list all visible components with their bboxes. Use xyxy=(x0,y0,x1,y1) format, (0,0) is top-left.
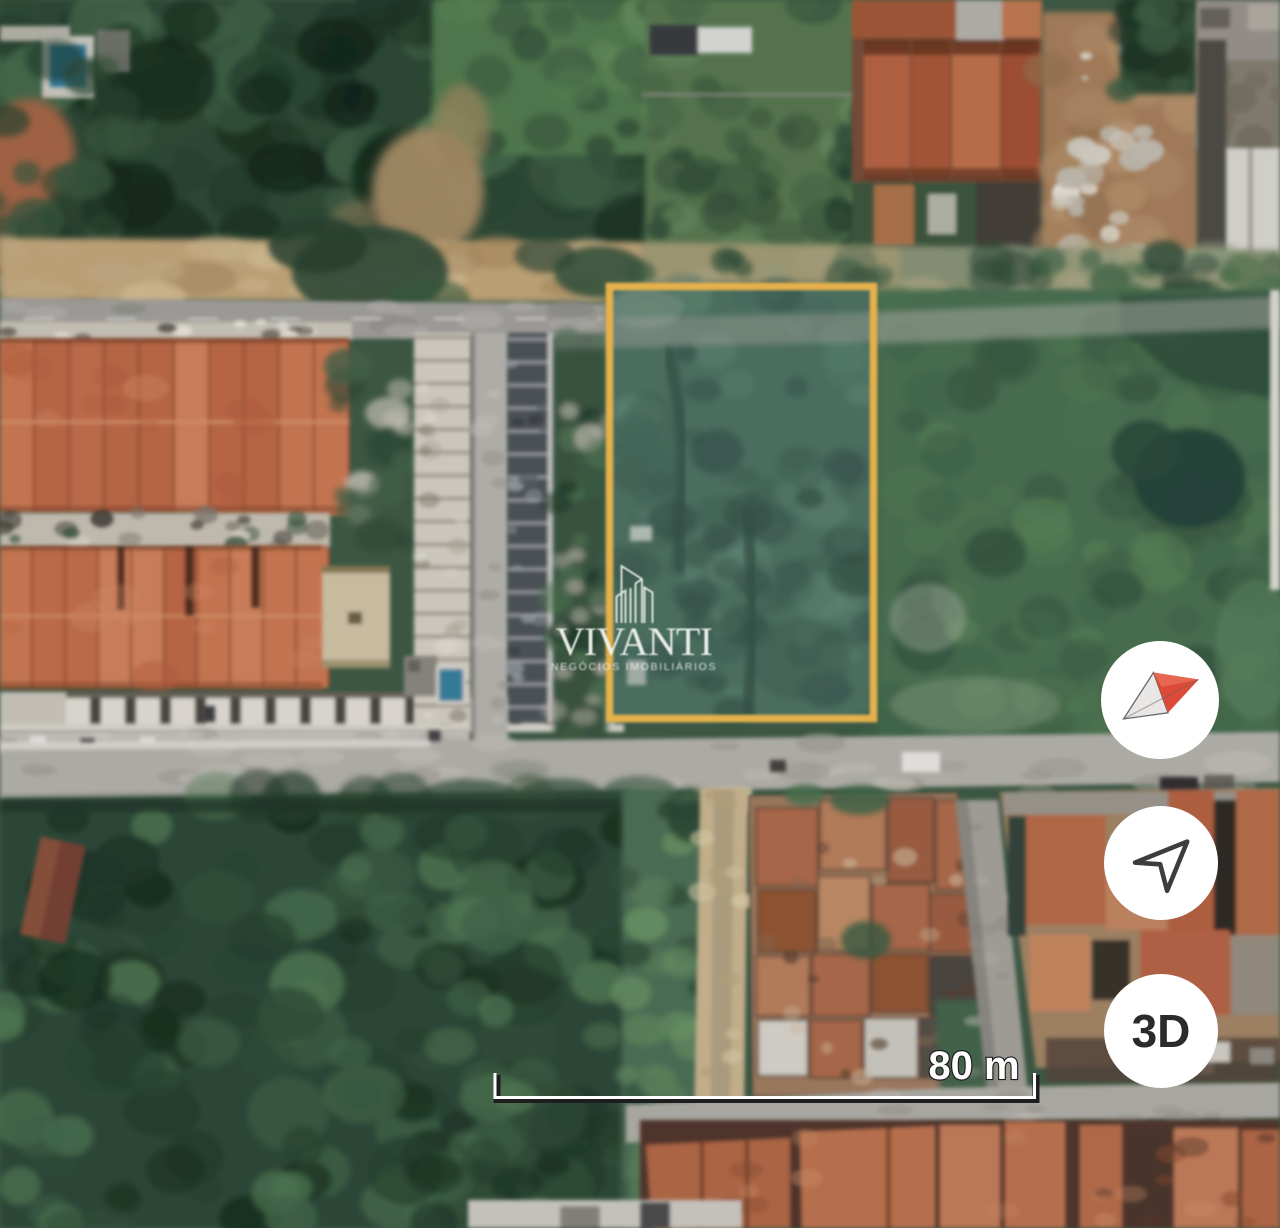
svg-text:VIVANTI: VIVANTI xyxy=(556,619,713,664)
svg-text:80 m: 80 m xyxy=(928,1044,1019,1088)
svg-text:NEGÓCIOS IMOBILIÁRIOS: NEGÓCIOS IMOBILIÁRIOS xyxy=(551,660,717,673)
svg-text:3D: 3D xyxy=(1132,1005,1191,1057)
